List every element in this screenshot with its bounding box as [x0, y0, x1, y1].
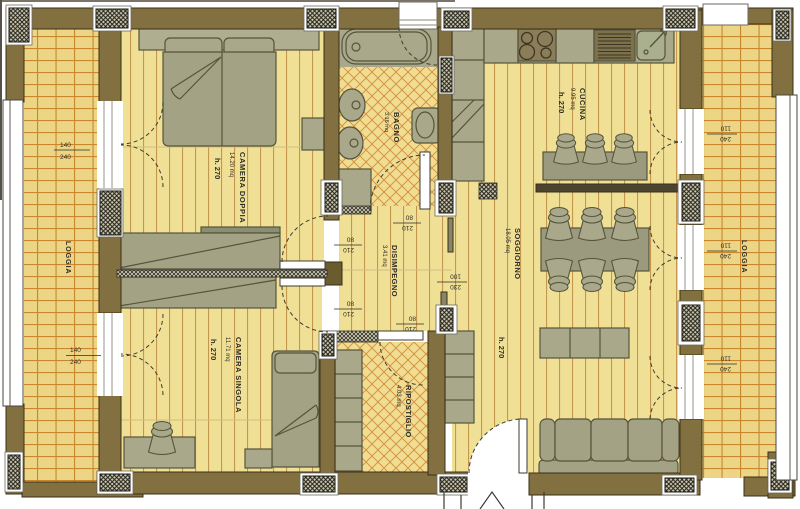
svg-text:CAMERA DOPPIA: CAMERA DOPPIA: [238, 152, 247, 223]
svg-text:LOGGIA: LOGGIA: [64, 241, 71, 275]
svg-text:240: 240: [60, 154, 71, 161]
svg-text:230: 230: [450, 283, 461, 290]
svg-text:CAMERA SINGOLA: CAMERA SINGOLA: [234, 337, 243, 413]
svg-text:BAGNO: BAGNO: [392, 112, 401, 143]
svg-text:110: 110: [720, 125, 731, 132]
svg-text:LOGGIA: LOGGIA: [740, 240, 747, 274]
svg-text:h. 270: h. 270: [497, 337, 506, 358]
svg-text:210: 210: [405, 325, 416, 332]
svg-text:80: 80: [346, 300, 354, 307]
svg-text:140: 140: [60, 142, 71, 149]
svg-text:210: 210: [343, 310, 354, 317]
svg-text:h. 270: h. 270: [209, 339, 218, 360]
svg-text:CUCINA: CUCINA: [578, 88, 587, 121]
svg-text:240: 240: [70, 359, 81, 366]
svg-text:210: 210: [343, 246, 354, 253]
svg-text:80: 80: [346, 236, 354, 243]
svg-text:18.05 mq: 18.05 mq: [504, 228, 510, 253]
svg-text:11.71 mq: 11.71 mq: [224, 337, 230, 362]
svg-text:210: 210: [402, 224, 413, 231]
svg-text:9.95 mq: 9.95 mq: [569, 88, 575, 110]
svg-text:4.03 mq: 4.03 mq: [395, 385, 401, 407]
svg-text:80: 80: [405, 214, 413, 221]
svg-text:RIPOSTIGLIO: RIPOSTIGLIO: [404, 385, 413, 438]
svg-text:240: 240: [720, 365, 731, 372]
svg-text:3.41 mq: 3.41 mq: [381, 245, 387, 267]
svg-text:240: 240: [720, 135, 731, 142]
svg-text:14.20 mq: 14.20 mq: [228, 152, 234, 177]
svg-text:80: 80: [408, 315, 416, 322]
svg-text:110: 110: [720, 242, 731, 249]
svg-text:100: 100: [450, 273, 461, 280]
svg-text:3.16 mq: 3.16 mq: [383, 112, 389, 132]
svg-text:140: 140: [70, 347, 81, 354]
svg-text:h. 270: h. 270: [557, 92, 566, 113]
svg-text:110: 110: [720, 355, 731, 362]
svg-text:240: 240: [720, 252, 731, 259]
svg-text:DISIMPEGNO: DISIMPEGNO: [390, 245, 399, 297]
svg-text:SOGGIORNO: SOGGIORNO: [513, 228, 522, 280]
svg-text:h. 270: h. 270: [213, 158, 222, 179]
